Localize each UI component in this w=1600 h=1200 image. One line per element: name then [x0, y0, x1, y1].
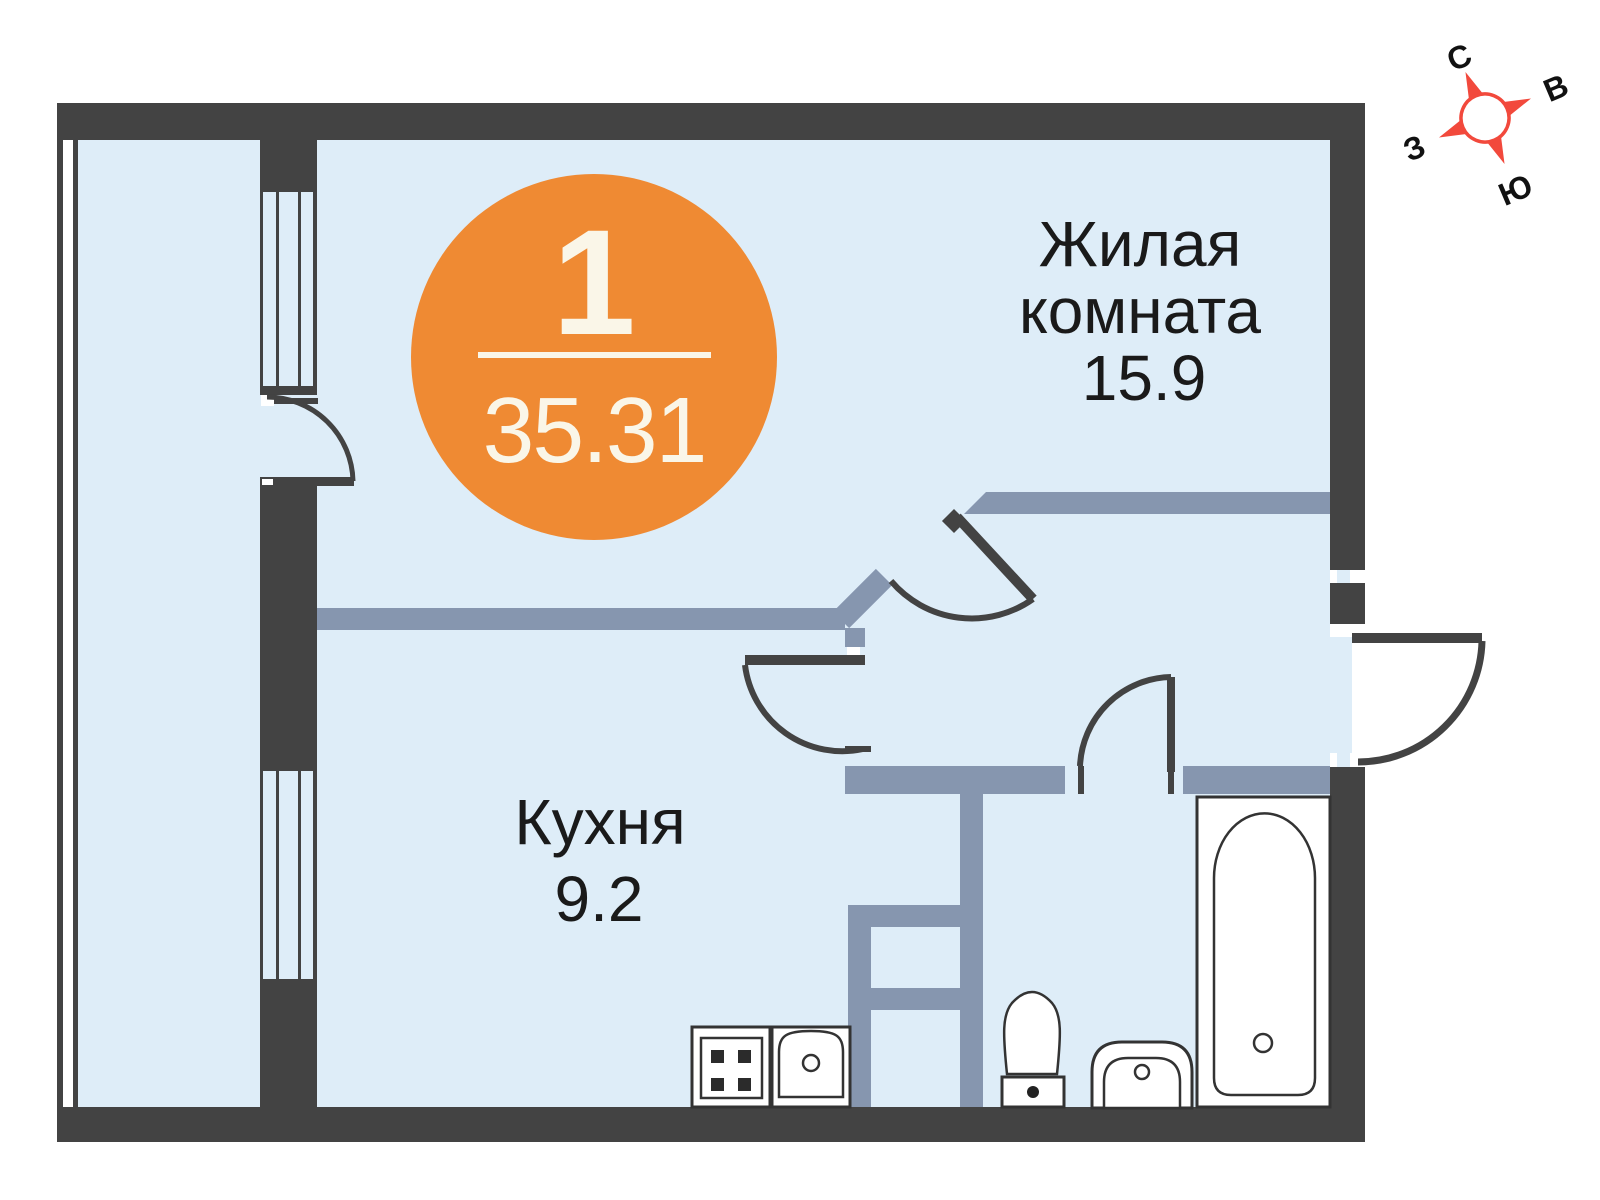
badge-divider	[478, 352, 711, 358]
wall-right-lower	[1330, 767, 1365, 1142]
balcony-wall-mid	[260, 486, 317, 768]
bathtub-drain	[1254, 1034, 1272, 1052]
kitchen-label: Кухня	[514, 786, 685, 858]
wall-right-upper	[1330, 133, 1365, 570]
bathroom-wall-right	[1183, 766, 1330, 794]
washbasin	[1092, 1042, 1192, 1108]
compass-north-label: С	[1442, 36, 1477, 78]
balcony-outer-line	[57, 133, 63, 1107]
kitchen-door-stub	[845, 628, 865, 647]
compass-west-label: З	[1398, 128, 1431, 169]
balcony-inner-line	[73, 133, 78, 1107]
compass-south-label: Ю	[1493, 167, 1537, 213]
living-room-area: 15.9	[1082, 342, 1207, 414]
balcony-door-hinge-notch	[262, 479, 273, 485]
living-room-label-line1: Жилая	[1039, 208, 1241, 280]
window-pane	[301, 192, 313, 386]
entrance-door-swing-arc	[1358, 641, 1482, 762]
badge-total-area: 35.31	[483, 378, 706, 482]
kitchen-door-bottom-jamb	[845, 746, 871, 752]
window-pane	[279, 771, 298, 979]
window-pane	[263, 771, 276, 979]
balcony-glazing-gap	[63, 133, 73, 1107]
bathroom-door-leaf	[1167, 677, 1175, 772]
balcony-window-upper	[260, 189, 317, 395]
bathroom-door-jamb-left	[1078, 766, 1084, 794]
kitchen-sink	[772, 1027, 850, 1107]
stove-burner	[738, 1078, 751, 1091]
living-room-partition-wall	[964, 492, 1330, 514]
bathtub	[1197, 797, 1330, 1107]
entrance-door-leaf	[1352, 633, 1482, 643]
stove-inner	[701, 1038, 762, 1098]
kitchen-sink-drain	[803, 1055, 819, 1071]
toilet-bowl	[1004, 992, 1060, 1074]
entrance-opening	[1330, 637, 1352, 753]
wall-top	[57, 103, 1365, 140]
badge-rooms-count: 1	[552, 198, 635, 366]
entrance-jamb-notch-2	[1337, 624, 1350, 637]
kitchen-area: 9.2	[555, 863, 644, 935]
washbasin-drain	[1135, 1065, 1149, 1079]
stove-burner	[711, 1078, 724, 1091]
balcony-window-lower	[260, 768, 317, 982]
wall-right-mid	[1330, 583, 1365, 624]
kitchen-door-leaf	[745, 655, 865, 665]
entrance-jamb-notch-3	[1337, 753, 1350, 767]
compass-east-label: В	[1538, 67, 1573, 109]
compass-rose: С В З Ю	[1372, 6, 1600, 240]
balcony-wall-top	[260, 133, 317, 191]
wall-bottom	[57, 1107, 1365, 1142]
balcony-wall-bottom	[260, 982, 317, 1107]
kitchen-door-jamb-notch	[847, 647, 860, 656]
stove	[692, 1027, 770, 1107]
compass-center-circle	[1454, 87, 1517, 150]
window-pane	[263, 192, 276, 386]
toilet	[1002, 992, 1064, 1107]
stove-burner	[738, 1050, 751, 1063]
toilet-tank-button	[1027, 1086, 1039, 1098]
window-pane	[301, 771, 313, 979]
living-room-label-line2: комната	[1019, 275, 1261, 347]
entrance-door	[1352, 633, 1482, 762]
floor-plan: 1 35.31 Жилая комната 15.9 Кухня 9.2 С В…	[0, 0, 1600, 1200]
floor-plan-page: 1 35.31 Жилая комната 15.9 Кухня 9.2 С В…	[0, 0, 1600, 1200]
vent-shaft-right-wall	[960, 794, 983, 1107]
window-pane	[279, 192, 298, 386]
entrance-jamb-notch-1	[1337, 570, 1350, 583]
balcony-door-leaf	[260, 477, 354, 486]
stove-burner	[711, 1050, 724, 1063]
bathroom-wall-left	[845, 766, 1065, 794]
area-badge: 1 35.31	[411, 174, 777, 540]
vent-shaft-rung-top	[871, 905, 960, 927]
kitchen-partition-wall	[310, 608, 845, 630]
vent-shaft-rung-bottom	[871, 988, 960, 1010]
